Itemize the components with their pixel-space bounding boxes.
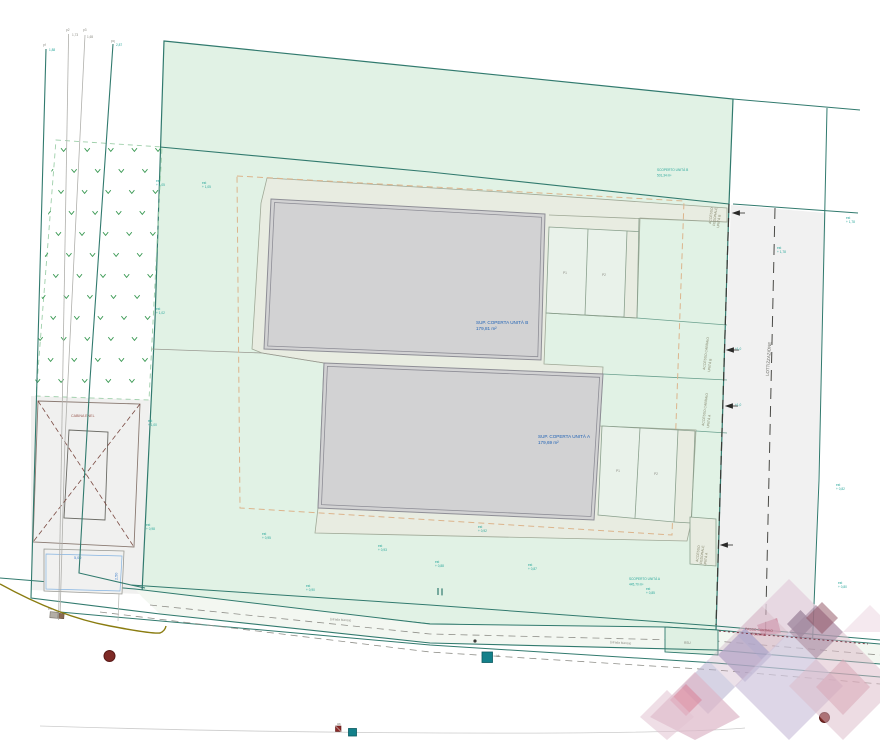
svg-text:SUP. COPERTA UNITÀ B: SUP. COPERTA UNITÀ B — [476, 319, 528, 325]
svg-text:+ 1,00: + 1,00 — [148, 423, 157, 427]
svg-text:P1: P1 — [616, 469, 620, 473]
svg-text:179,69 m²: 179,69 m² — [538, 440, 559, 445]
svg-text:+ 0,88: + 0,88 — [435, 564, 444, 568]
svg-text:+ 1,78: + 1,78 — [777, 250, 786, 254]
svg-text:P1: P1 — [563, 271, 567, 275]
svg-text:p3: p3 — [83, 28, 87, 32]
svg-text:+ 0,87: + 0,87 — [528, 567, 537, 571]
svg-text:+ 0,93: + 0,93 — [378, 548, 387, 552]
svg-text:RSU: RSU — [684, 641, 691, 645]
svg-text:+ 0,98: + 0,98 — [146, 527, 155, 531]
svg-text:SUP. COPERTA UNITÀ A: SUP. COPERTA UNITÀ A — [538, 433, 591, 439]
svg-text:aa: aa — [337, 722, 341, 726]
svg-text:+ 1,05: + 1,05 — [202, 185, 211, 189]
svg-text:1,88: 1,88 — [49, 48, 55, 52]
svg-text:2,50: 2,50 — [115, 573, 119, 580]
svg-text:+ 0,92: + 0,92 — [478, 529, 487, 533]
svg-text:+ 1,05: + 1,05 — [156, 183, 165, 187]
svg-text:179,81 m²: 179,81 m² — [476, 326, 497, 331]
svg-text:1,65: 1,65 — [87, 35, 93, 39]
svg-text:+1,0: +1,0 — [735, 403, 742, 407]
svg-text:445,70 m²: 445,70 m² — [629, 583, 643, 587]
svg-text:pq: pq — [111, 39, 115, 43]
svg-text:P2: P2 — [654, 472, 658, 476]
svg-text:SCOPERTO UNITÀ A: SCOPERTO UNITÀ A — [629, 577, 661, 581]
svg-text:p2: p2 — [66, 28, 70, 32]
svg-text:+ 0,82: + 0,82 — [836, 487, 845, 491]
svg-text:+ 0,95: + 0,95 — [262, 536, 271, 540]
svg-text:501,34 m²: 501,34 m² — [657, 174, 671, 178]
svg-text:2,87: 2,87 — [116, 43, 122, 47]
svg-text:+ 1,02: + 1,02 — [156, 311, 165, 315]
svg-text:+ 0,85: + 0,85 — [646, 591, 655, 595]
svg-text:P2: P2 — [602, 273, 606, 277]
svg-text:1,73: 1,73 — [72, 33, 78, 37]
svg-text:+ 0,90: + 0,90 — [306, 588, 315, 592]
svg-text:+1,0: +1,0 — [735, 347, 742, 351]
svg-text:+ 0,80: + 0,80 — [838, 585, 847, 589]
svg-text:+ 1,78: + 1,78 — [846, 220, 855, 224]
svg-text:SCOPERTO UNITÀ B: SCOPERTO UNITÀ B — [657, 168, 688, 172]
svg-text:CABINA ENEL: CABINA ENEL — [71, 414, 95, 418]
svg-text:pf: pf — [43, 43, 46, 47]
